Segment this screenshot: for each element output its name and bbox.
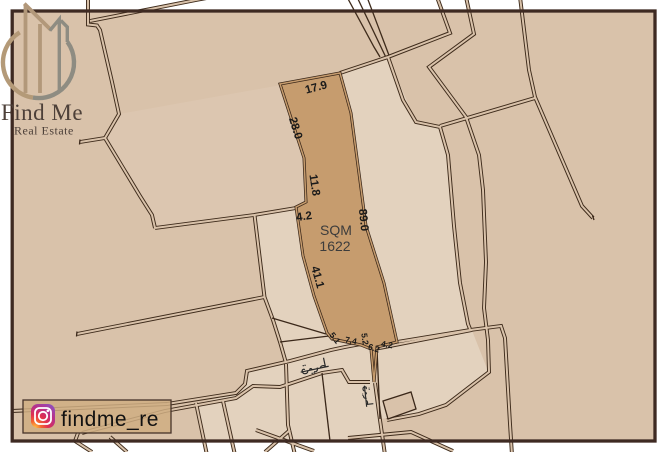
svg-text:SQM: SQM bbox=[320, 222, 352, 238]
svg-text:7.4: 7.4 bbox=[344, 335, 358, 347]
svg-text:findme_re: findme_re bbox=[61, 408, 159, 431]
svg-text:4.2: 4.2 bbox=[380, 339, 394, 351]
svg-text:Find Me: Find Me bbox=[1, 100, 83, 125]
svg-text:Real Estate: Real Estate bbox=[14, 124, 74, 138]
svg-text:89.0: 89.0 bbox=[356, 208, 370, 232]
svg-text:4.2: 4.2 bbox=[295, 210, 313, 224]
svg-text:1622: 1622 bbox=[319, 238, 350, 254]
